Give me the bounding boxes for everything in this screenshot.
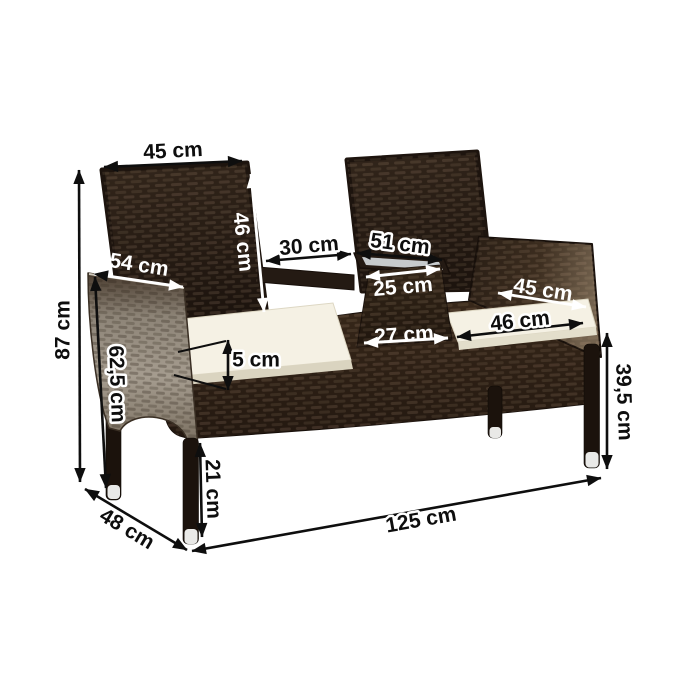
dim-label-table-base-width: 27 cm: [373, 321, 434, 348]
dim-label-left-backrest-width: 45 cm: [143, 138, 204, 164]
leg-mid-rear: [488, 386, 502, 438]
dim-label-total-height: 87 cm: [52, 300, 75, 360]
leg-cap: [490, 427, 502, 438]
dim-label-seat-frame-height: 39,5 cm: [611, 363, 637, 441]
dim-label-cushion-thickness: 5 cm: [232, 349, 280, 372]
dim-label-armrest-height: 62,5 cm: [104, 345, 130, 423]
leg-front-right: [584, 344, 600, 468]
diagram-svg: 45 cm 46 cm 30 cm 51 cm 54 cm 25 cm 45 c…: [0, 0, 700, 700]
dim-label-front-leg-height: 21 cm: [200, 459, 225, 519]
leg-cap: [586, 452, 599, 468]
leg-cap: [108, 485, 121, 499]
leg-front-left: [183, 438, 199, 544]
product-dimension-diagram: 45 cm 46 cm 30 cm 51 cm 54 cm 25 cm 45 c…: [0, 0, 700, 700]
leg-cap: [185, 529, 198, 544]
